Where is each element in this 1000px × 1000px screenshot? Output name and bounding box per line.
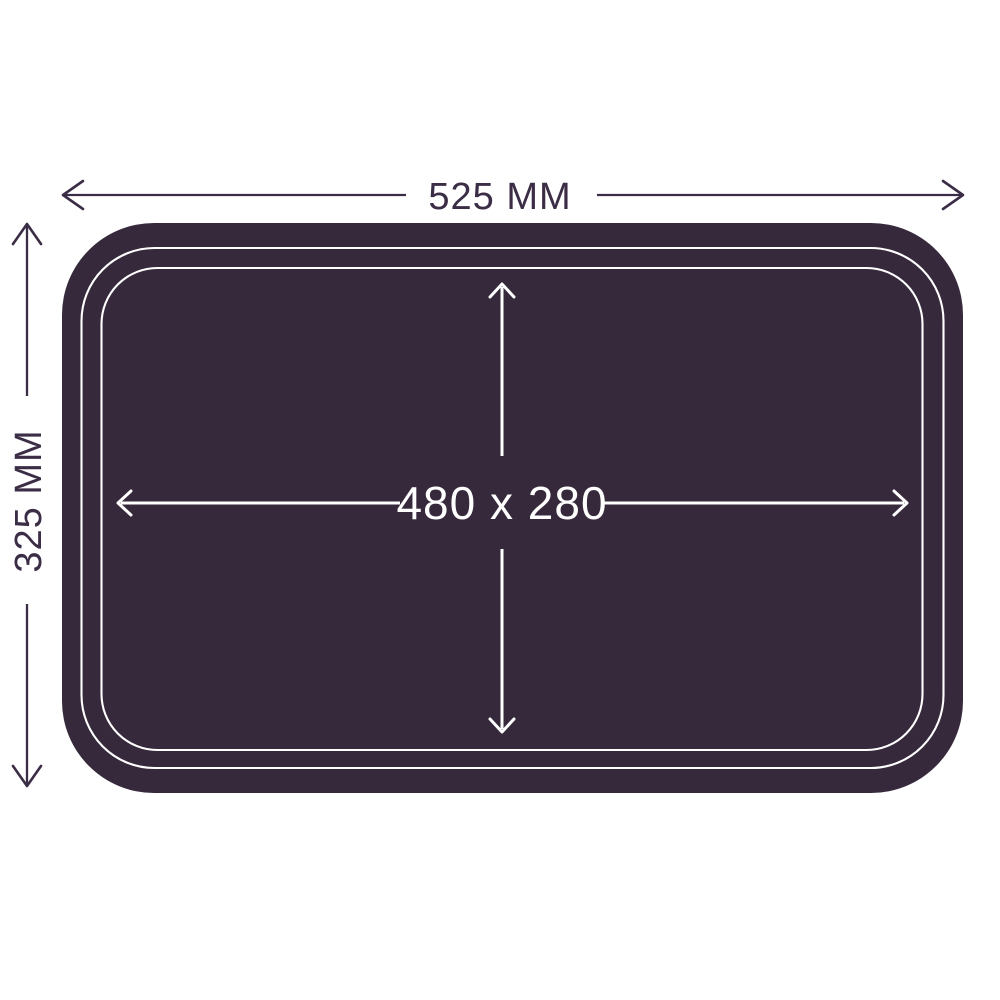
inner-size-label: 480 x 280: [396, 477, 607, 529]
outer-height-label: 325 MM: [8, 429, 50, 572]
diagram-canvas: 525 MM 325 MM 480 x 280: [0, 0, 1000, 1000]
outer-width-dimension: 525 MM: [63, 176, 963, 218]
tray-dimension-diagram: 525 MM 325 MM 480 x 280: [0, 0, 1000, 1000]
outer-width-label: 525 MM: [428, 176, 571, 218]
outer-height-dimension: 325 MM: [8, 224, 50, 786]
